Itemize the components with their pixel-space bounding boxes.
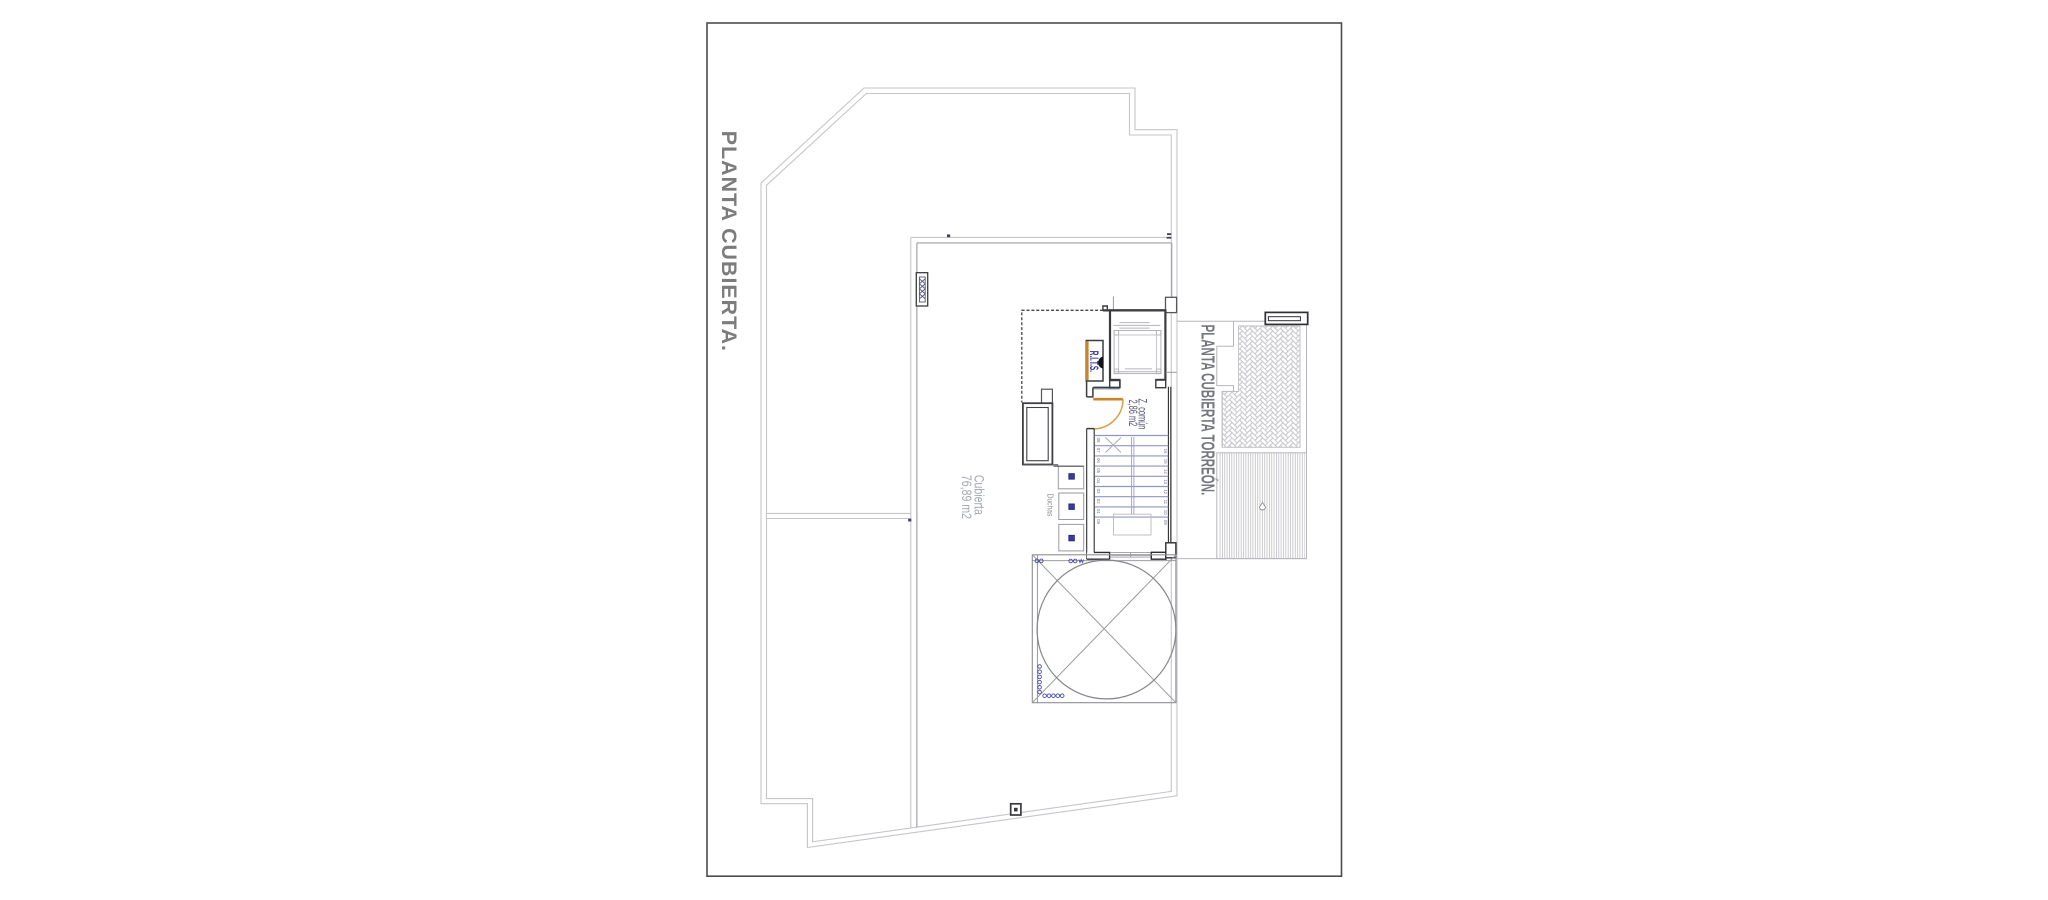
svg-text:04: 04: [1096, 478, 1101, 483]
svg-text:08: 08: [1096, 438, 1101, 443]
svg-text:13: 13: [1163, 479, 1168, 484]
svg-text:PLANTA CUBIERTA.: PLANTA CUBIERTA.: [717, 131, 741, 352]
svg-text:05: 05: [1096, 468, 1101, 473]
svg-text:10: 10: [1163, 510, 1168, 515]
svg-text:06: 06: [1096, 458, 1101, 463]
svg-text:2,86 m2: 2,86 m2: [1125, 400, 1138, 427]
svg-text:09: 09: [1096, 519, 1101, 524]
svg-text:12: 12: [1163, 489, 1168, 494]
svg-text:11: 11: [1163, 500, 1168, 505]
svg-text:15: 15: [1163, 459, 1168, 464]
svg-text:R.I.T.S.: R.I.T.S.: [1086, 351, 1100, 372]
svg-text:16: 16: [1163, 449, 1168, 454]
svg-text:07: 07: [1096, 448, 1101, 453]
svg-text:02: 02: [1096, 499, 1101, 504]
svg-text:01: 01: [1096, 509, 1101, 514]
svg-text:Duchas: Duchas: [1045, 494, 1055, 517]
svg-text:14: 14: [1163, 469, 1168, 474]
svg-text:PLANTA CUBIERTA TORREÓN.: PLANTA CUBIERTA TORREÓN.: [1197, 325, 1219, 496]
svg-text:76,89 m2: 76,89 m2: [958, 475, 974, 519]
svg-text:09: 09: [1163, 520, 1168, 525]
svg-text:03: 03: [1096, 489, 1101, 494]
